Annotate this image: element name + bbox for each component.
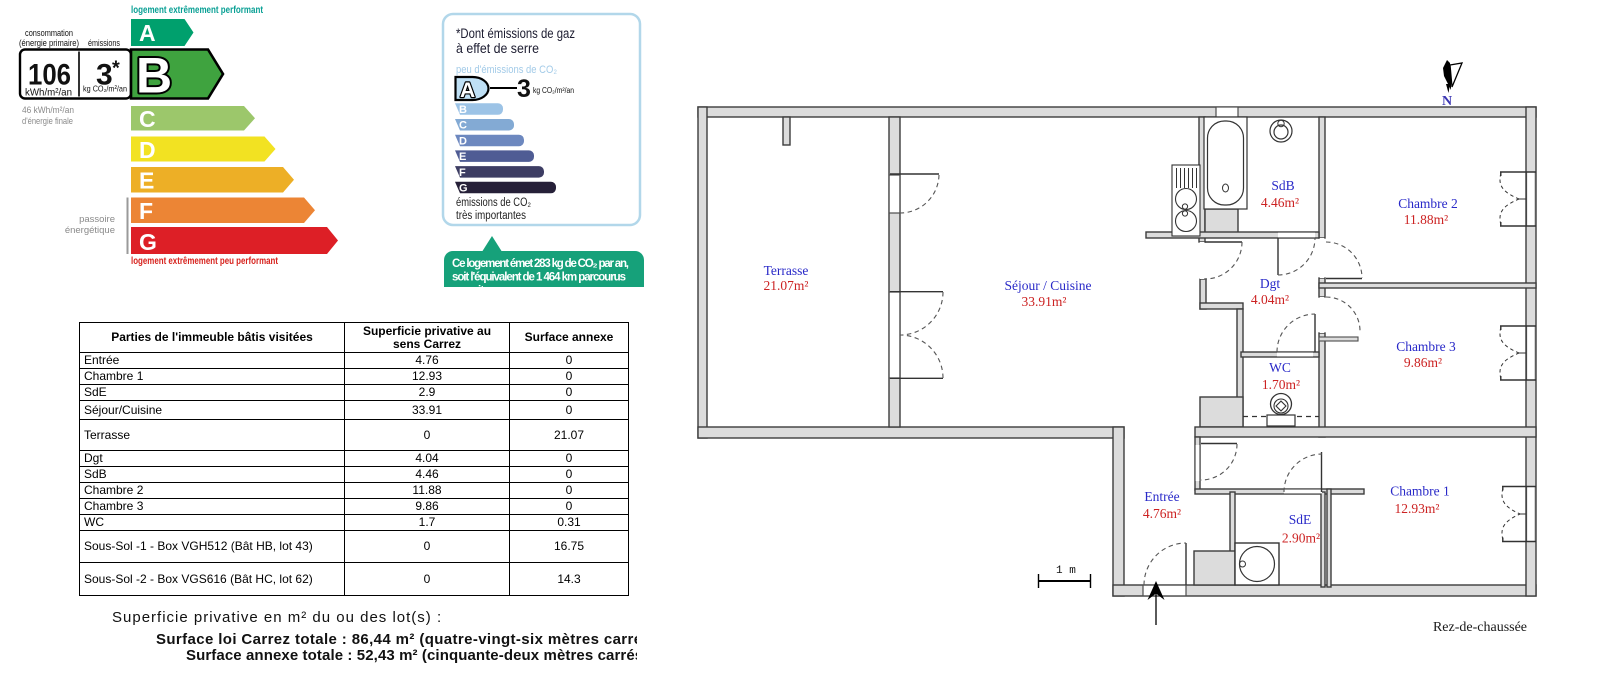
svg-text:1.70m²: 1.70m² [1262,377,1300,392]
svg-text:Rez-de-chaussée: Rez-de-chaussée [1433,620,1527,635]
svg-text:21.07m²: 21.07m² [764,278,809,293]
svg-text:Terrasse: Terrasse [764,263,809,278]
svg-text:Dgt: Dgt [1260,276,1280,291]
svg-text:Séjour / Cuisine: Séjour / Cuisine [1005,278,1092,293]
svg-text:SdE: SdE [1289,512,1312,527]
svg-text:11.88m²: 11.88m² [1404,212,1448,227]
svg-text:WC: WC [1269,360,1291,375]
svg-text:33.91m²: 33.91m² [1022,294,1067,309]
svg-text:N: N [1442,94,1452,109]
svg-text:4.76m²: 4.76m² [1143,506,1181,521]
svg-text:Chambre 3: Chambre 3 [1396,339,1456,354]
svg-text:SdB: SdB [1271,178,1294,193]
svg-text:Chambre 2: Chambre 2 [1398,196,1458,211]
svg-text:Chambre 1: Chambre 1 [1390,484,1450,499]
svg-text:4.04m²: 4.04m² [1251,292,1289,307]
svg-text:Entrée: Entrée [1144,489,1179,504]
svg-text:9.86m²: 9.86m² [1404,355,1442,370]
svg-text:12.93m²: 12.93m² [1395,501,1440,516]
svg-text:1 m: 1 m [1056,565,1076,577]
svg-text:4.46m²: 4.46m² [1261,195,1299,210]
svg-text:2.90m²: 2.90m² [1282,531,1320,546]
